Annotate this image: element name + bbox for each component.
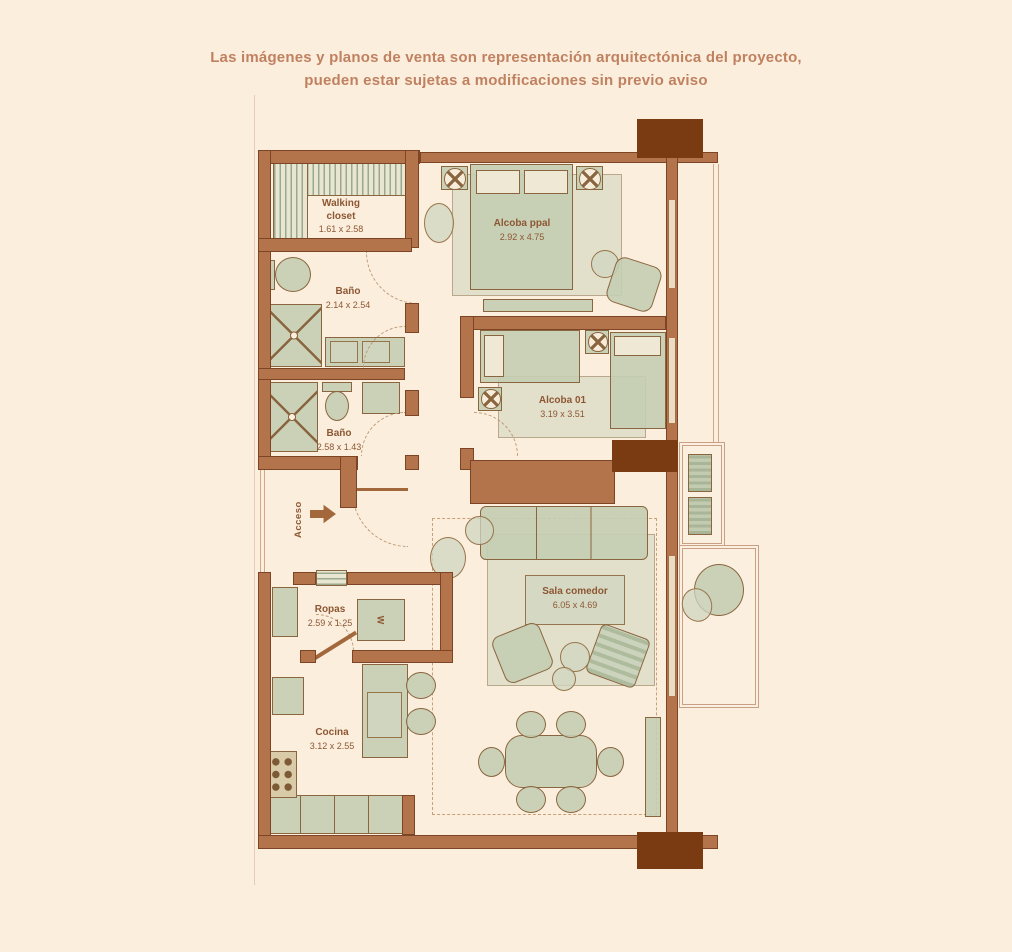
ceiling-lamp-icon: [588, 332, 608, 352]
window-master: [668, 200, 676, 288]
wall-ropas-bottom-a: [300, 650, 316, 663]
dining-table: [505, 735, 597, 788]
planter-2: [688, 497, 712, 535]
master-bed-pillow-left: [476, 170, 520, 194]
shower-1: [266, 304, 322, 367]
wall-bath-divider: [258, 368, 405, 380]
entrance-label: Acceso: [293, 492, 304, 538]
room-label-bath2: Baño 2.58 x 1.43: [296, 428, 382, 452]
bed-bench: [483, 299, 593, 312]
wall-corridor-c: [405, 390, 419, 416]
wall-ropas-bottom-b: [352, 650, 453, 663]
wall-corridor-a: [405, 150, 419, 248]
sideboard: [645, 717, 661, 817]
planter-1: [688, 454, 712, 492]
entry-door-leaf: [352, 488, 408, 491]
wall-corridor-b: [405, 303, 419, 333]
master-bed-pillow-right: [524, 170, 568, 194]
dining-chair: [556, 786, 586, 813]
washbasin: [362, 382, 400, 414]
bedroom01-nightstand-top: [585, 330, 609, 354]
door-arc-entry: [352, 491, 408, 547]
sink-left: [330, 341, 358, 363]
wall-ropas-top-a: [293, 572, 316, 585]
coffee-table-small: [552, 667, 576, 691]
room-label-bath1: Baño 2.14 x 2.54: [305, 286, 391, 310]
room-label-living-dining: Sala comedor 6.05 x 4.69: [527, 586, 623, 610]
stove: [267, 751, 297, 798]
room-label-master-bedroom: Alcoba ppal 2.92 x 4.75: [474, 218, 570, 242]
wall-left-lower: [258, 572, 271, 848]
ceiling-lamp-icon: [444, 168, 466, 190]
entry-threshold: [260, 470, 265, 572]
nightstand-left: [441, 166, 468, 190]
single-bed-2-pillow: [614, 336, 661, 356]
wall-left-upper: [258, 150, 271, 470]
wall-top-left: [258, 150, 420, 164]
floor-plan: Las imágenes y planos de venta son repre…: [0, 0, 1012, 952]
wall-entry-stub: [340, 456, 357, 508]
column-right: [612, 440, 678, 472]
entrance-arrow-icon: [310, 503, 336, 525]
wall-bedrooms-divider: [466, 316, 666, 330]
wall-ropas-top-b: [347, 572, 453, 585]
dining-chair: [516, 786, 546, 813]
bar-stool-2: [406, 708, 436, 735]
room-label-bedroom01: Alcoba 01 3.19 x 3.51: [515, 395, 610, 419]
dining-chair: [597, 747, 624, 777]
dining-chair: [478, 747, 505, 777]
wall-tv-alcove: [470, 460, 615, 504]
disclaimer-line-1: Las imágenes y planos de venta son repre…: [0, 46, 1012, 69]
wall-corridor-d: [405, 455, 419, 470]
nightstand-right: [576, 166, 603, 190]
lot-line: [254, 95, 255, 885]
single-bed-1-pillow: [484, 335, 504, 377]
kitchen-counter-left-corner: [272, 677, 304, 715]
door-arc-bath1: [363, 326, 405, 368]
room-label-walking-closet: Walking closet 1.61 x 2.58: [298, 198, 384, 234]
balcony-door: [668, 556, 676, 696]
wall-closet-bottom: [258, 238, 412, 252]
column-top: [637, 119, 703, 158]
dining-chair: [556, 711, 586, 738]
window-bedroom01: [668, 338, 676, 423]
washer-label: W: [375, 616, 385, 625]
disclaimer-line-2: pueden estar sujetas a modificaciones si…: [0, 69, 1012, 92]
sofa-side-table: [465, 516, 494, 545]
building-edge-line: [713, 164, 719, 444]
dining-chair: [516, 711, 546, 738]
ceiling-lamp-icon: [579, 168, 601, 190]
room-label-kitchen: Cocina 3.12 x 2.55: [289, 727, 375, 751]
bar-stool-1: [406, 672, 436, 699]
disclaimer: Las imágenes y planos de venta son repre…: [0, 46, 1012, 93]
wall-bedroom01-left-a: [460, 316, 474, 398]
kitchen-counter-bottom: [266, 795, 403, 834]
toilet2-bowl: [325, 391, 349, 421]
counter-end-wall: [402, 795, 415, 835]
bedroom01-nightstand-corner: [478, 387, 502, 411]
ropas-duct: [316, 570, 347, 586]
sofa: [480, 506, 648, 560]
ceiling-lamp-icon: [481, 389, 501, 409]
master-plant: [424, 203, 454, 243]
column-bottom: [637, 832, 703, 869]
room-label-laundry: Ropas 2.59 x 1.25: [287, 604, 373, 628]
